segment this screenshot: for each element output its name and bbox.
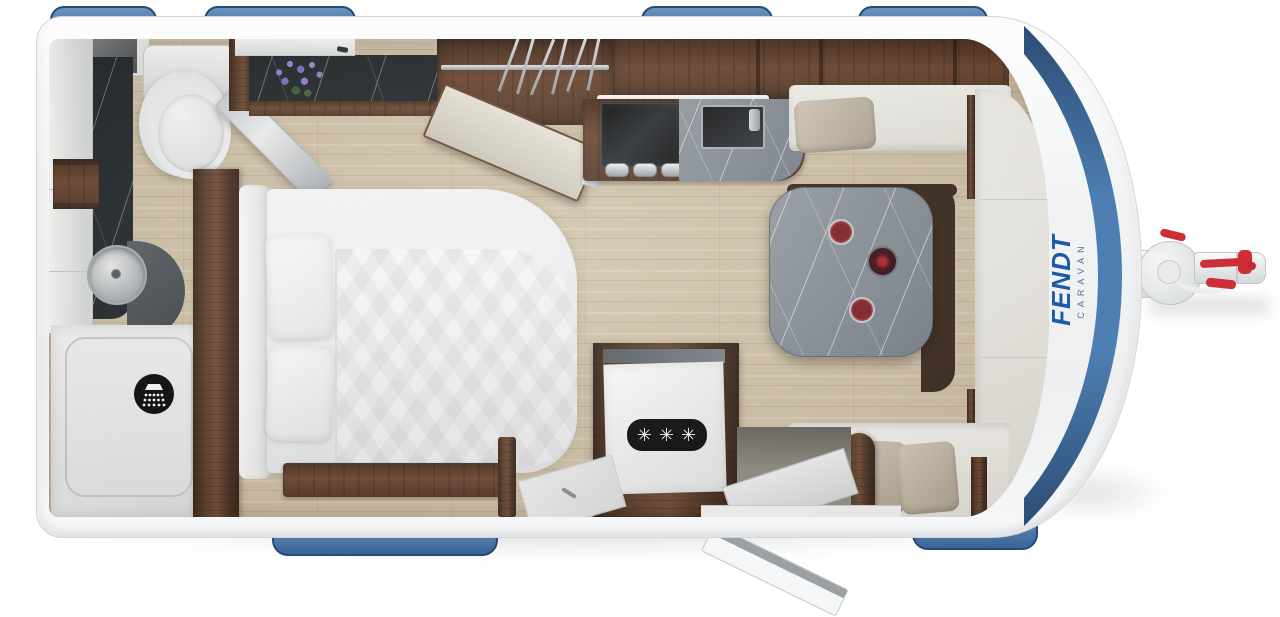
interior-floor: ✳✳✳ <box>49 39 1049 517</box>
shower-tray-outline <box>65 337 193 497</box>
wine-bottle <box>867 246 898 277</box>
dinette-cushion-bottom-2 <box>896 441 960 516</box>
hitch-red-lever <box>1159 228 1186 242</box>
dinette-trim-upper <box>967 95 975 199</box>
bed-duvet <box>335 249 577 465</box>
kitchen-faucet <box>749 109 760 131</box>
sideboard-front-edge <box>249 101 437 116</box>
bed-footboard <box>283 463 503 497</box>
freezer-stars-badge: ✳✳✳ <box>627 419 707 451</box>
brand-logo: FENDT CARAVAN <box>1048 218 1096 342</box>
brand-name: FENDT <box>1048 218 1074 342</box>
bathroom-wood-shelf <box>53 159 99 209</box>
cooktop-knob-1 <box>605 163 629 177</box>
partition-wall <box>193 169 239 517</box>
flower-vase <box>271 57 325 101</box>
caravan-floorplan: ✳✳✳ FENDT CARAVAN <box>0 0 1280 588</box>
bed-corner-post <box>498 437 516 517</box>
caravan-body: ✳✳✳ <box>36 16 1142 538</box>
sink-drain <box>111 269 121 279</box>
dinette-table <box>769 187 933 357</box>
cooktop-knob-2 <box>633 163 657 177</box>
overhead-divider-1 <box>756 39 760 103</box>
dinette-cushion-top <box>793 96 876 153</box>
wine-glass-2 <box>849 297 875 323</box>
wine-glass-1 <box>828 219 854 245</box>
bed-pillow-1 <box>265 232 335 340</box>
cooktop <box>601 103 681 167</box>
entry-threshold <box>701 505 901 517</box>
bench-support <box>971 457 987 517</box>
bed-pillow-2 <box>265 344 334 442</box>
shower-icon <box>133 373 175 415</box>
hitch-jaw-dot <box>1248 262 1256 270</box>
brand-sub-name: CARAVAN <box>1076 218 1086 342</box>
